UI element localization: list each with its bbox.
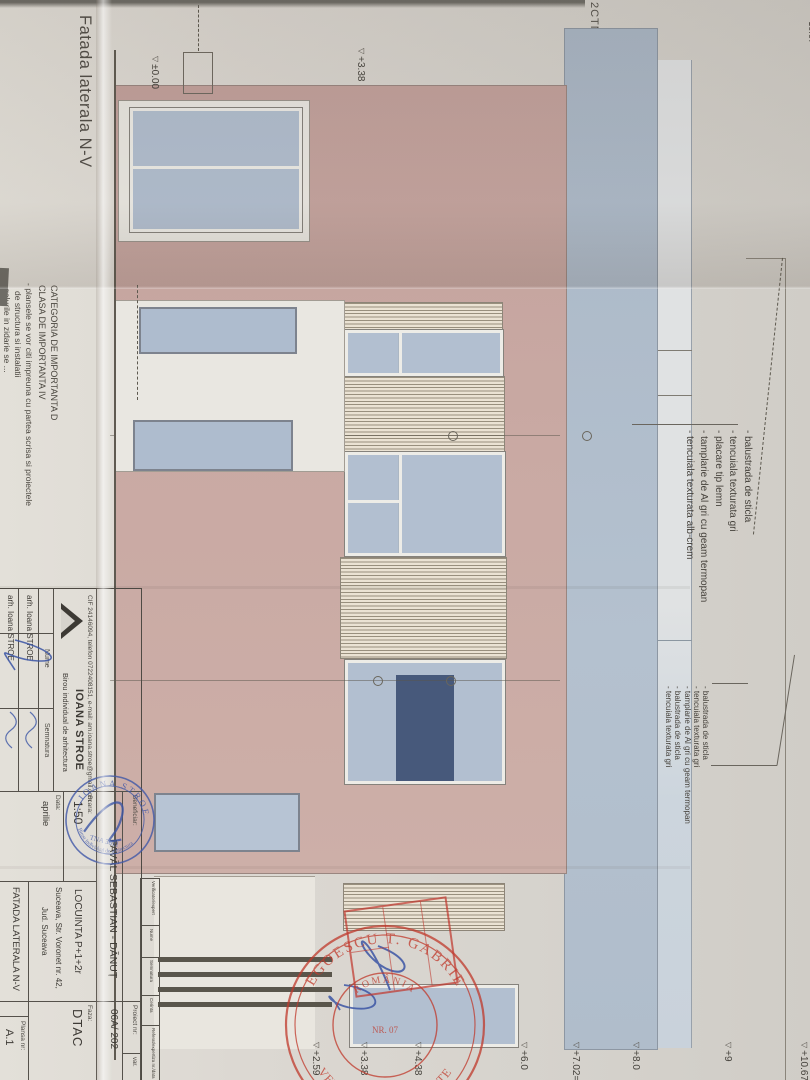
signature-stroke bbox=[26, 712, 37, 748]
photo-of-architectural-drawing: 2CTN +10.67=+ bbox=[0, 0, 810, 1080]
signature-stroke bbox=[6, 712, 17, 748]
red-square-stamp bbox=[343, 896, 458, 998]
blue-stamp-top-text: IOANA STROE bbox=[75, 772, 158, 820]
red-square-stamp-line bbox=[382, 907, 395, 990]
paper-edge-shadow bbox=[0, 0, 585, 8]
red-stamp-bottom-text: ★ VERIFICATOR PROIECTE ★ bbox=[313, 1014, 457, 1080]
blue-architect-stamp: IOANA STROE Birou individual de arhitect… bbox=[62, 772, 158, 868]
red-square-stamp-line bbox=[420, 902, 433, 985]
rotated-sheet-container: 2CTN +10.67=+ bbox=[0, 0, 810, 1080]
svg-text:IOANA STROE: IOANA STROE bbox=[75, 772, 158, 820]
signature-stroke bbox=[5, 640, 52, 670]
red-square-stamp-line bbox=[351, 947, 389, 953]
red-stamp-inner-center-text: NR. 07 bbox=[372, 1025, 399, 1035]
svg-text:★ VERIFICATOR PROIECTE ★: ★ VERIFICATOR PROIECTE ★ bbox=[313, 1014, 457, 1080]
